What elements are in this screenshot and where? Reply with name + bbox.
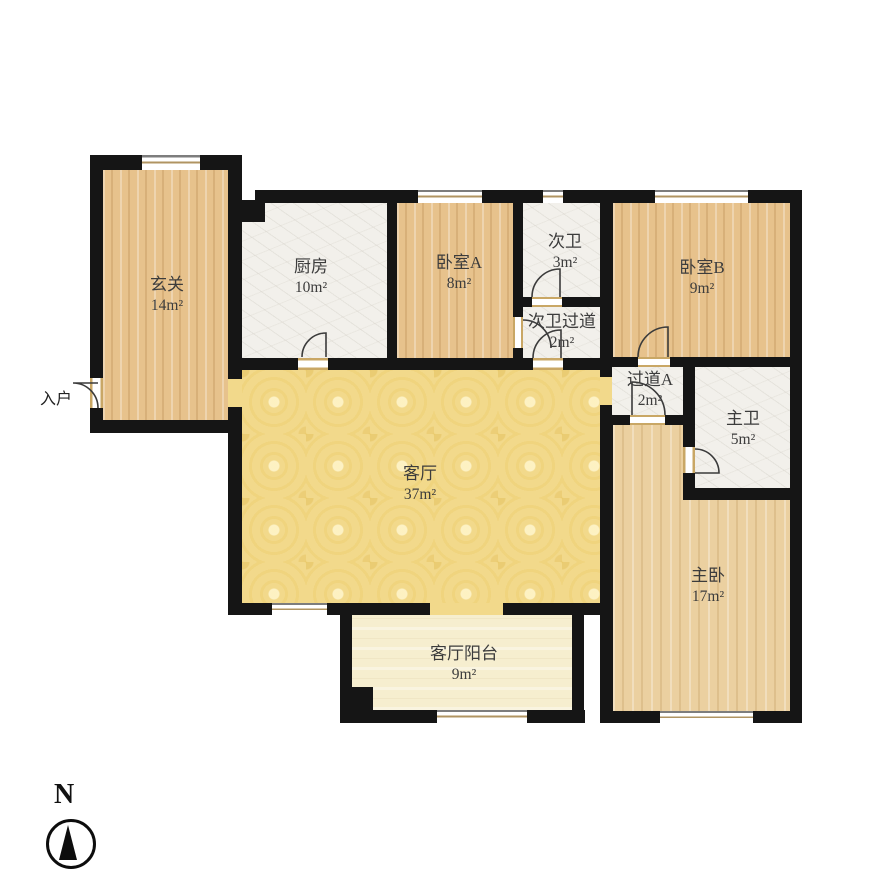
room-label-bath-1: 主卫5m² (726, 408, 760, 450)
bath-1-door-sill (683, 447, 695, 473)
room-label-hall-a: 过道A2m² (627, 369, 673, 411)
wall-segment (503, 603, 613, 615)
entrance-label: 入户 (40, 385, 72, 409)
room-label-bath-2: 次卫3m² (548, 231, 582, 273)
bedroom-a-door-sill (513, 317, 523, 348)
floor-plan: 玄关14m² 厨房10m² 卧室A8m² 次卫3m² 卧室B9m² 次卫过道2m… (0, 0, 895, 880)
wall-segment (523, 297, 532, 307)
room-label-bath2-hall: 次卫过道2m² (528, 311, 596, 353)
wall-segment (513, 348, 523, 370)
window (660, 711, 753, 723)
entrance-door-sill (90, 378, 103, 408)
wall-segment (753, 711, 802, 723)
room-label-living: 客厅37m² (403, 463, 437, 505)
wall-segment (665, 415, 683, 425)
opening-living-hall-a (600, 377, 612, 405)
wall-segment (373, 710, 437, 723)
wall-segment (562, 297, 600, 307)
compass-needle-icon (59, 825, 77, 860)
window (437, 710, 527, 723)
window (543, 190, 563, 203)
wall-segment (228, 358, 298, 370)
bath2-hall-door-sill (533, 358, 563, 370)
wall-segment (387, 190, 397, 370)
wall-segment (228, 603, 272, 615)
wall-segment (228, 155, 242, 379)
wall-segment (600, 190, 613, 358)
wall-segment (90, 168, 103, 378)
hall-a-door-sill (630, 415, 665, 425)
window (272, 603, 327, 615)
wall-segment (513, 190, 523, 317)
wall-segment (790, 190, 802, 723)
wall-segment (572, 615, 584, 723)
room-label-kitchen: 厨房10m² (294, 256, 328, 298)
wall-segment (340, 687, 373, 723)
room-label-balcony: 客厅阳台9m² (430, 643, 498, 685)
bath-2-door-sill (532, 297, 562, 307)
wall-segment (238, 200, 265, 222)
wall-segment (90, 420, 242, 433)
room-label-bedroom-b: 卧室B9m² (679, 257, 724, 299)
bedroom-b-door-sill (638, 357, 670, 367)
window (142, 155, 200, 170)
wall-segment (327, 603, 430, 615)
compass-north-label: N (54, 779, 74, 811)
opening-living-balcony (430, 603, 503, 615)
wall-segment (600, 711, 660, 723)
wall-segment (600, 425, 613, 723)
wall-segment (228, 407, 242, 615)
window (655, 190, 748, 203)
wall-segment (600, 357, 612, 377)
wall-segment (600, 415, 630, 425)
wall-segment (340, 615, 352, 690)
room-label-entry: 玄关14m² (150, 274, 184, 316)
wall-segment (683, 357, 695, 447)
kitchen-door-sill (298, 358, 328, 370)
room-label-master: 主卧17m² (691, 565, 725, 607)
opening-entry-living (228, 379, 242, 407)
room-label-bedroom-a: 卧室A8m² (436, 252, 482, 294)
wall-segment (328, 358, 533, 370)
wall-segment (683, 488, 802, 500)
window (418, 190, 482, 203)
